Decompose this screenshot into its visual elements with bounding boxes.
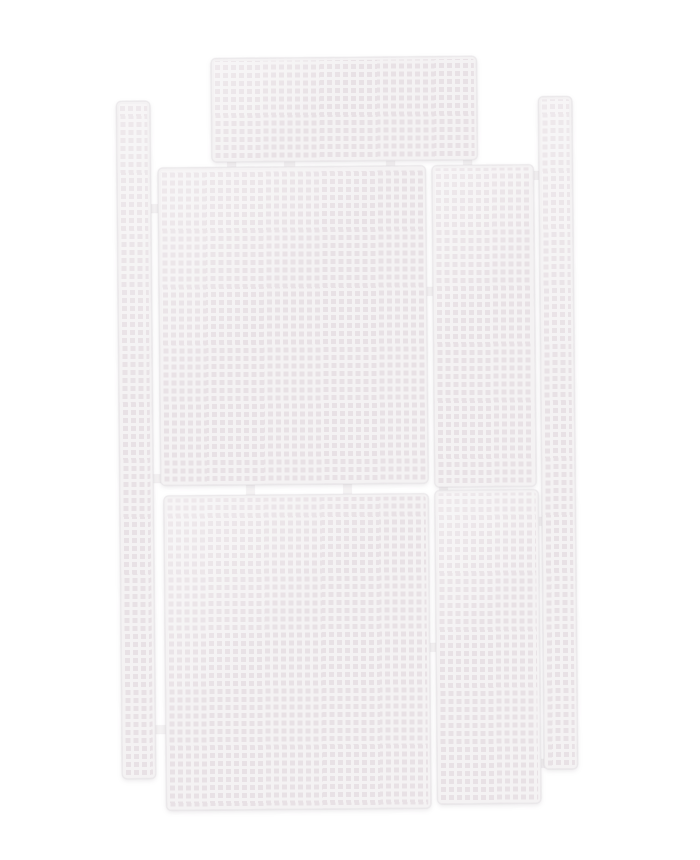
product-photo (0, 0, 700, 860)
pieces-group (0, 0, 700, 860)
mesh-panel-upper-right-narrow (432, 164, 537, 487)
mesh-strip-left-edge (116, 101, 156, 779)
mesh-panel-lower-right-narrow (435, 489, 542, 804)
mesh-strip-right-edge (538, 96, 578, 769)
mesh-panel-upper-left-large (158, 165, 429, 485)
mesh-panel-top-wide (211, 56, 478, 162)
mesh-panel-lower-left-large (164, 493, 432, 810)
